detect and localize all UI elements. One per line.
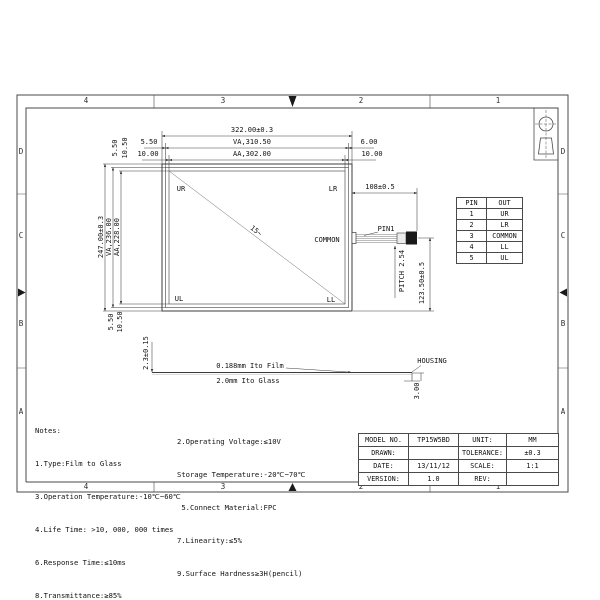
title-block-row: VERSION: 1.0 REV: (359, 473, 559, 486)
drawn-value (409, 447, 459, 460)
dim-right-aa-offset: 10.00 (361, 150, 382, 158)
pin-signal: COMMON (487, 231, 523, 242)
film-label: 0.188mm Ito Film (216, 362, 283, 370)
rev-value (507, 473, 559, 486)
zone-row-a-right: A (561, 408, 566, 416)
glass-label: 2.0mm Ito Glass (216, 377, 279, 385)
dim-top-aa-offset: 10.50 (121, 137, 129, 158)
tolerance-value: ±0.3 (507, 447, 559, 460)
tail-connector (406, 232, 417, 245)
common-label: COMMON (314, 236, 339, 244)
unit-label: UNIT: (459, 434, 507, 447)
notes-block-right: 2.Operating Voltage:≤10V Storage Tempera… (177, 414, 306, 600)
title-block-row: MODEL NO. TP15W5BD UNIT: MM (359, 434, 559, 447)
pin-header: PIN (457, 198, 487, 209)
pin-signal: UR (487, 209, 523, 220)
pin-row-3: 3 COMMON (457, 231, 523, 242)
title-block-row: DRAWN: TOLERANCE: ±0.3 (359, 447, 559, 460)
notes-title: Notes: (35, 425, 181, 436)
out-header: OUT (487, 198, 523, 209)
zone-row-b-left: B (19, 320, 24, 328)
note-line: 9.Surface Hardness≥3H(pencil) (177, 568, 306, 579)
dim-stack-thickness: 2.3±0.15 (142, 336, 150, 370)
dim-overall-width: 322.00±0.3 (231, 126, 273, 134)
pin-row-2: 2 LR (457, 220, 523, 231)
pin-row-5: 5 UL (457, 253, 523, 264)
dim-va-width: VA,310.50 (233, 138, 271, 146)
pin-row-4: 4 LL (457, 242, 523, 253)
version-label: VERSION: (359, 473, 409, 486)
projection-symbol (534, 108, 558, 160)
zone-col-1-top: 1 (496, 97, 501, 105)
dim-overall-height: 247.00±0.3 (97, 216, 105, 258)
tolerance-label: TOLERANCE: (459, 447, 507, 460)
dim-aa-width: AA,302.00 (233, 150, 271, 158)
zone-row-d-right: D (561, 148, 566, 156)
note-line: 7.Linearity:≤5% (177, 535, 306, 546)
pin-number: 5 (457, 253, 487, 264)
pin-number: 3 (457, 231, 487, 242)
version-value: 1.0 (409, 473, 459, 486)
pin-number: 2 (457, 220, 487, 231)
dim-aa-height: AA,228.00 (113, 218, 121, 256)
dim-left-va-offset: 5.50 (141, 138, 158, 146)
rev-label: REV: (459, 473, 507, 486)
fpc-tail (352, 232, 417, 245)
section-view (152, 342, 424, 381)
note-line: 6.Response Time:≤10ms (35, 557, 181, 568)
scale-label: SCALE: (459, 460, 507, 473)
pin-signal: UL (487, 253, 523, 264)
pin-number: 4 (457, 242, 487, 253)
zone-row-c-left: C (19, 232, 24, 240)
note-line: 5.Connect Material:FPC (177, 502, 306, 513)
pin-number: 1 (457, 209, 487, 220)
dim-tail-length: 108±0.5 (365, 183, 395, 191)
corner-label-ul: UL (175, 295, 183, 303)
pin-signal: LL (487, 242, 523, 253)
date-value: 13/11/12 (409, 460, 459, 473)
zone-col-3-top: 3 (221, 97, 226, 105)
pin-out-table: PIN OUT 1 UR 2 LR 3 COMMON 4 LL 5 UL (456, 197, 523, 264)
note-line: Storage Temperature:-20℃~70℃ (177, 469, 306, 480)
dim-bottom-va-offset: 5.50 (107, 314, 115, 331)
pin-signal: LR (487, 220, 523, 231)
note-line: 2.Operating Voltage:≤10V (177, 436, 306, 447)
model-no-value: TP15W5BD (409, 434, 459, 447)
zone-row-b-right: B (561, 320, 566, 328)
zone-row-a-left: A (19, 408, 24, 416)
drawn-label: DRAWN: (359, 447, 409, 460)
zone-col-4-top: 4 (84, 97, 89, 105)
tail-collar (397, 233, 406, 244)
note-line: 3.Operation Temperature:-10℃~60℃ (35, 491, 181, 502)
pin1-label: PIN1 (378, 225, 395, 233)
dim-tail-vertical: 123.50±0.5 (418, 262, 426, 304)
dim-tail-pitch: PITCH 2.54 (398, 250, 406, 292)
zone-row-c-right: C (561, 232, 566, 240)
date-label: DATE: (359, 460, 409, 473)
notes-block-left: Notes: 1.Type:Film to Glass 3.Operation … (35, 403, 181, 600)
dimension-lines (103, 131, 434, 311)
dim-right-va-offset: 6.00 (361, 138, 378, 146)
unit-value: MM (507, 434, 559, 447)
pin-table-header-row: PIN OUT (457, 198, 523, 209)
corner-label-ll: LL (327, 296, 335, 304)
corner-label-lr: LR (329, 185, 337, 193)
tail-pin-block (352, 233, 356, 244)
dim-left-aa-offset: 10.00 (137, 150, 158, 158)
drawing-sheet: 4 3 2 1 4 3 2 1 D C B A D C B A 322.00±0… (0, 0, 600, 600)
dim-va-height: VA,236.00 (105, 218, 113, 256)
zone-col-2-top: 2 (359, 97, 364, 105)
note-line: 8.Transmittance:≥85% (35, 590, 181, 600)
title-block: MODEL NO. TP15W5BD UNIT: MM DRAWN: TOLER… (358, 433, 559, 486)
dim-bottom-aa-offset: 10.50 (116, 311, 124, 332)
pin-row-1: 1 UR (457, 209, 523, 220)
model-no-label: MODEL NO. (359, 434, 409, 447)
note-line: 1.Type:Film to Glass (35, 458, 181, 469)
housing-label: HOUSING (417, 357, 447, 365)
note-line: 4.Life Time: >10, 000, 000 times (35, 524, 181, 535)
title-block-row: DATE: 13/11/12 SCALE: 1:1 (359, 460, 559, 473)
dim-housing-height: 3.00 (413, 383, 421, 400)
corner-label-ur: UR (177, 185, 185, 193)
dim-top-va-offset: 5.50 (111, 140, 119, 157)
zone-row-d-left: D (19, 148, 24, 156)
scale-value: 1:1 (507, 460, 559, 473)
